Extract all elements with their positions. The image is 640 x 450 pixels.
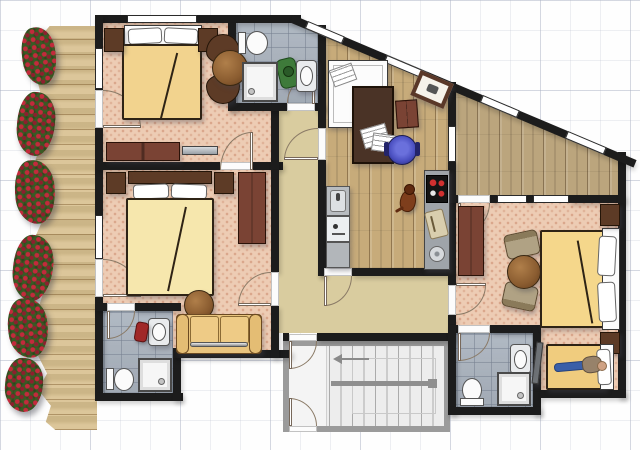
- shower-drain-bathroom3: [517, 392, 524, 399]
- door-gap-bedroom2-hall: [271, 272, 279, 306]
- wall-top: [95, 15, 301, 23]
- bed1-pillow-right: [164, 27, 199, 45]
- bed1-pillow-left: [128, 27, 163, 45]
- dog-head: [404, 184, 415, 195]
- door-gap-bathroom1: [287, 103, 315, 111]
- toilet-tank-bathroom2: [106, 368, 114, 390]
- side-chair: [395, 99, 419, 128]
- wardrobe-bedroom2: [238, 172, 266, 244]
- laundry-basket-lid: [283, 66, 294, 77]
- window-bedroom1-left: [95, 48, 103, 89]
- door-leaf-bedroom2-hall: [238, 303, 271, 306]
- door-leaf-hall-bedroom3: [456, 283, 486, 286]
- sofa-metal-bar: [190, 342, 248, 347]
- kitchen-counter: [326, 242, 350, 268]
- door-leaf-kitchen-hall: [324, 276, 327, 306]
- door-leaf-bedroom1-balcony: [103, 125, 141, 128]
- sideboard: [106, 142, 180, 161]
- wall-hall-left-1: [271, 111, 279, 170]
- door-leaf-stair-top: [289, 341, 292, 369]
- person-head: [597, 361, 607, 371]
- wall-office-left-2: [318, 160, 326, 276]
- wall-bathroom3-bottom: [448, 407, 541, 415]
- door-leaf-bedroom1-hall: [250, 132, 253, 170]
- wall-left-1: [95, 15, 103, 50]
- kitchen-faucet: [336, 193, 340, 201]
- door-leaf-entrance: [289, 398, 292, 426]
- window-bedroom2-left: [95, 215, 103, 259]
- bed2-nightstand-right: [214, 172, 234, 194]
- stair-handrail: [331, 381, 435, 386]
- window-bedroom3-interior-2: [533, 195, 569, 203]
- wall-bedroom3-left-2: [448, 315, 456, 325]
- tv-bar: [182, 146, 218, 155]
- floor-plan: [0, 0, 640, 450]
- wall-hall-left-3: [271, 306, 279, 358]
- stair-inner-line: [352, 358, 436, 414]
- stair-handrail-cap: [428, 379, 437, 388]
- sink-bowl-bathroom2: [152, 323, 166, 341]
- wall-bedroom3-top-b: [490, 195, 497, 203]
- sink-bowl-bathroom3: [514, 350, 527, 369]
- window-office-right: [448, 126, 456, 162]
- bed1-nightstand-left: [104, 28, 124, 52]
- door-leaf-bathroom2: [107, 311, 110, 339]
- shower-bathroom2: [138, 358, 172, 392]
- bed3-pillow-bottom: [597, 282, 617, 323]
- dishwasher: [326, 216, 350, 242]
- toilet-tank-bathroom1: [238, 32, 246, 54]
- wall-left-4: [95, 297, 103, 395]
- window-bedroom3-interior-1: [497, 195, 527, 203]
- stove: [426, 175, 448, 203]
- door-gap-entrance: [289, 426, 317, 432]
- wall-nook-bottom: [540, 390, 626, 398]
- wall-bathroom3-left: [448, 325, 456, 415]
- sofa-cushion-2: [220, 316, 249, 344]
- sink-bowl-bathroom1: [300, 66, 313, 86]
- shower-bathroom3: [497, 372, 531, 406]
- shower-drain-bathroom2: [158, 378, 165, 385]
- door-gap-bathroom2: [107, 303, 135, 311]
- toilet-bowl-bathroom1: [246, 31, 268, 55]
- bed3-nightstand-top: [600, 204, 620, 226]
- wall-left-3: [95, 128, 103, 217]
- bed2-headboard: [128, 171, 212, 184]
- door-gap-bedroom1-balcony: [95, 90, 103, 128]
- stair-arrow-tail: [341, 358, 369, 360]
- door-gap-corridor-bedroom3: [458, 195, 490, 203]
- bed2-nightstand-left: [106, 172, 126, 194]
- bed3-blanket: [540, 230, 604, 328]
- wall-bathroom2-bottom: [95, 393, 183, 401]
- door-gap-bathroom3: [458, 325, 490, 333]
- shower-bathroom1: [242, 62, 278, 102]
- window-bedroom1-top: [127, 15, 197, 23]
- wall-bathroom2-top-a: [95, 303, 107, 311]
- toilet-tank-bathroom3: [460, 398, 484, 406]
- toilet-bowl-bathroom2: [114, 368, 134, 391]
- flower-planter-6: [3, 357, 45, 414]
- office-chair: [387, 135, 417, 165]
- sofa-arm-left: [176, 314, 189, 354]
- wall-bathroom1-bottom-a: [228, 103, 287, 111]
- door-gap-bedroom2-balcony: [95, 259, 103, 297]
- bar-sink: [429, 246, 445, 262]
- dishwasher-icon-dot: [333, 224, 338, 229]
- dishwasher-icon-line: [332, 233, 345, 235]
- door-gap-stair-top: [289, 334, 317, 341]
- door-gap-kitchen-hall: [324, 268, 352, 276]
- office-chair-arm-right: [415, 142, 420, 156]
- door-gap-hall-bedroom3: [448, 285, 456, 315]
- shower-drain-bathroom1: [248, 88, 255, 95]
- door-leaf-office-hall: [284, 157, 318, 160]
- round-table-3: [507, 255, 541, 289]
- wardrobe-bedroom3: [458, 206, 484, 276]
- wall-hall-bottom-b: [317, 333, 456, 341]
- office-chair-arm-left: [384, 142, 389, 156]
- sofa-arm-right: [249, 314, 262, 354]
- balcony-deck: [33, 26, 97, 430]
- wall-bathroom2-top-b: [135, 303, 181, 311]
- wall-office-left-1: [318, 25, 326, 128]
- bed3-pillow-top: [597, 236, 617, 277]
- wall-hall-left-2: [271, 170, 279, 272]
- door-gap-office-hall: [318, 128, 326, 160]
- door-leaf-bathroom3: [458, 333, 461, 361]
- sofa-cushion-1: [190, 316, 219, 344]
- wall-bedrooms-divider-a: [95, 162, 220, 170]
